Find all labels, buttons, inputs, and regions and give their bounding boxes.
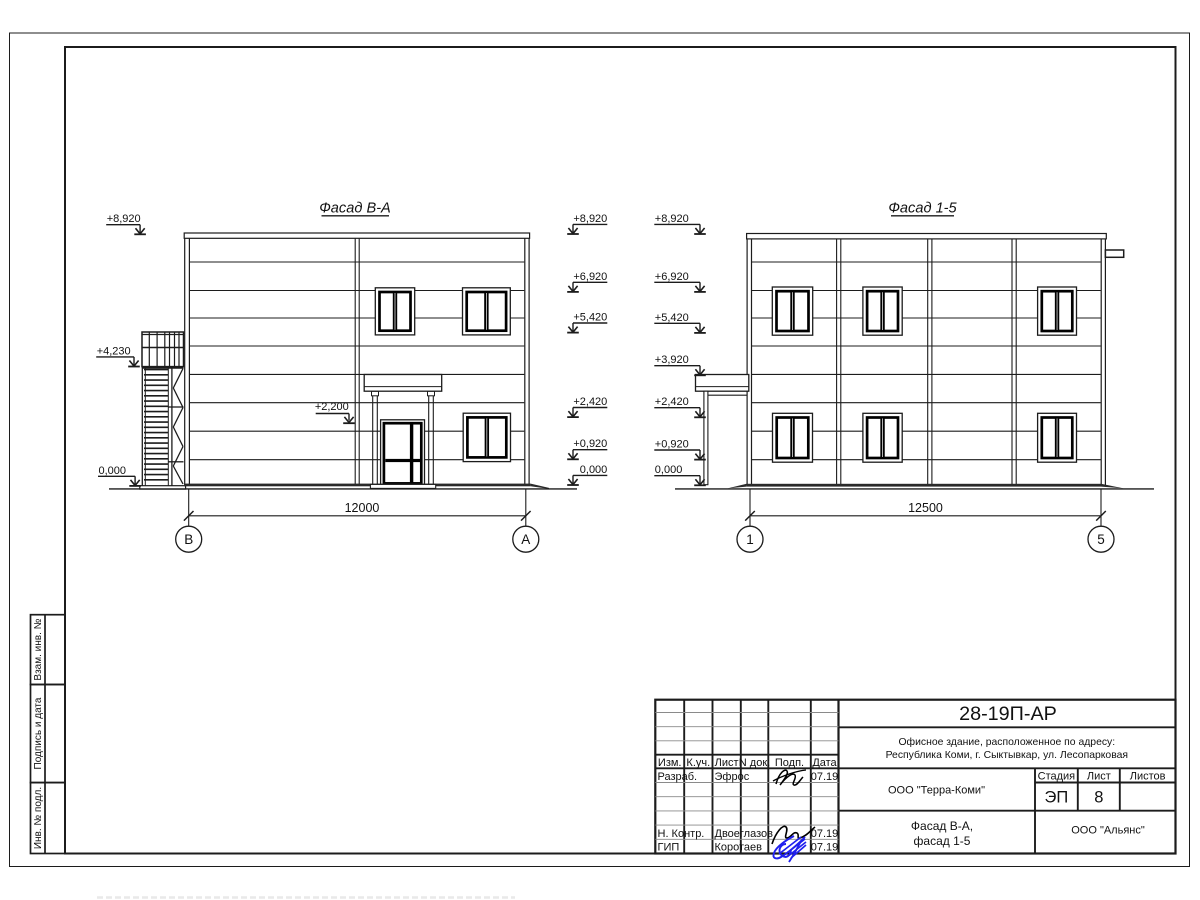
svg-text:Н. Контр.: Н. Контр. bbox=[658, 828, 705, 840]
svg-text:ГИП: ГИП bbox=[658, 842, 680, 854]
svg-text:Стадия: Стадия bbox=[1038, 771, 1076, 783]
svg-text:28-19П-АР: 28-19П-АР bbox=[959, 703, 1057, 725]
svg-text:N док.: N док. bbox=[739, 757, 770, 769]
svg-text:Взам. инв. №: Взам. инв. № bbox=[33, 618, 44, 680]
svg-text:Фасад 1-5: Фасад 1-5 bbox=[888, 201, 957, 217]
svg-text:07.19: 07.19 bbox=[811, 842, 839, 854]
svg-text:07.19: 07.19 bbox=[811, 771, 839, 783]
svg-text:+6,920: +6,920 bbox=[573, 271, 607, 283]
svg-text:Двоеглазов: Двоеглазов bbox=[715, 828, 774, 840]
svg-text:+5,420: +5,420 bbox=[573, 312, 607, 324]
svg-text:0,000: 0,000 bbox=[655, 464, 683, 476]
svg-text:5: 5 bbox=[1097, 532, 1105, 547]
svg-text:Дата: Дата bbox=[812, 757, 837, 769]
svg-text:8: 8 bbox=[1094, 789, 1103, 807]
svg-text:+8,920: +8,920 bbox=[655, 213, 689, 225]
svg-text:+0,920: +0,920 bbox=[655, 439, 689, 451]
svg-text:ЭП: ЭП bbox=[1045, 789, 1069, 807]
svg-text:+2,200: +2,200 bbox=[315, 401, 349, 413]
svg-text:+0,920: +0,920 bbox=[573, 438, 607, 450]
svg-text:+2,420: +2,420 bbox=[573, 396, 607, 408]
svg-text:фасад 1-5: фасад 1-5 bbox=[914, 834, 971, 848]
svg-text:Коротаев: Коротаев bbox=[715, 842, 763, 854]
svg-text:+2,420: +2,420 bbox=[655, 396, 689, 408]
svg-text:Лист: Лист bbox=[715, 757, 739, 769]
svg-text:Офисное здание, расположенное: Офисное здание, расположенное по адресу: bbox=[898, 736, 1115, 748]
svg-text:12000: 12000 bbox=[345, 501, 380, 515]
svg-text:Листов: Листов bbox=[1130, 771, 1166, 783]
svg-text:+3,920: +3,920 bbox=[655, 354, 689, 366]
svg-text:А: А bbox=[521, 532, 530, 547]
svg-text:+5,420: +5,420 bbox=[655, 312, 689, 324]
svg-text:+6,920: +6,920 bbox=[655, 271, 689, 283]
svg-text:Эфрос: Эфрос bbox=[715, 771, 750, 783]
svg-text:В: В bbox=[184, 532, 193, 547]
svg-text:1: 1 bbox=[746, 532, 754, 547]
svg-text:0,000: 0,000 bbox=[99, 465, 127, 477]
svg-text:07.19: 07.19 bbox=[811, 828, 839, 840]
svg-text:К.уч.: К.уч. bbox=[686, 757, 710, 769]
svg-text:+4,230: +4,230 bbox=[97, 345, 131, 357]
svg-text:0,000: 0,000 bbox=[580, 464, 608, 476]
svg-text:Подпись и дата: Подпись и дата bbox=[33, 697, 44, 769]
svg-text:Лист: Лист bbox=[1087, 771, 1111, 783]
svg-text:Республика Коми, г. Сыктывкар,: Республика Коми, г. Сыктывкар, ул. Лесоп… bbox=[886, 749, 1128, 761]
svg-text:+8,920: +8,920 bbox=[573, 213, 607, 225]
svg-text:12500: 12500 bbox=[908, 501, 943, 515]
svg-text:Инв. № подл.: Инв. № подл. bbox=[33, 787, 44, 849]
svg-text:+8,920: +8,920 bbox=[107, 213, 141, 225]
svg-text:Фасад В-А,: Фасад В-А, bbox=[911, 819, 973, 833]
svg-text:ООО "Терра-Коми": ООО "Терра-Коми" bbox=[888, 785, 985, 797]
svg-text:Изм.: Изм. bbox=[658, 757, 682, 769]
svg-text:Разраб.: Разраб. bbox=[658, 771, 698, 783]
svg-text:ООО "Альянс": ООО "Альянс" bbox=[1071, 825, 1145, 837]
svg-text:Фасад В-А: Фасад В-А bbox=[319, 201, 391, 217]
svg-text:Подп.: Подп. bbox=[775, 757, 804, 769]
